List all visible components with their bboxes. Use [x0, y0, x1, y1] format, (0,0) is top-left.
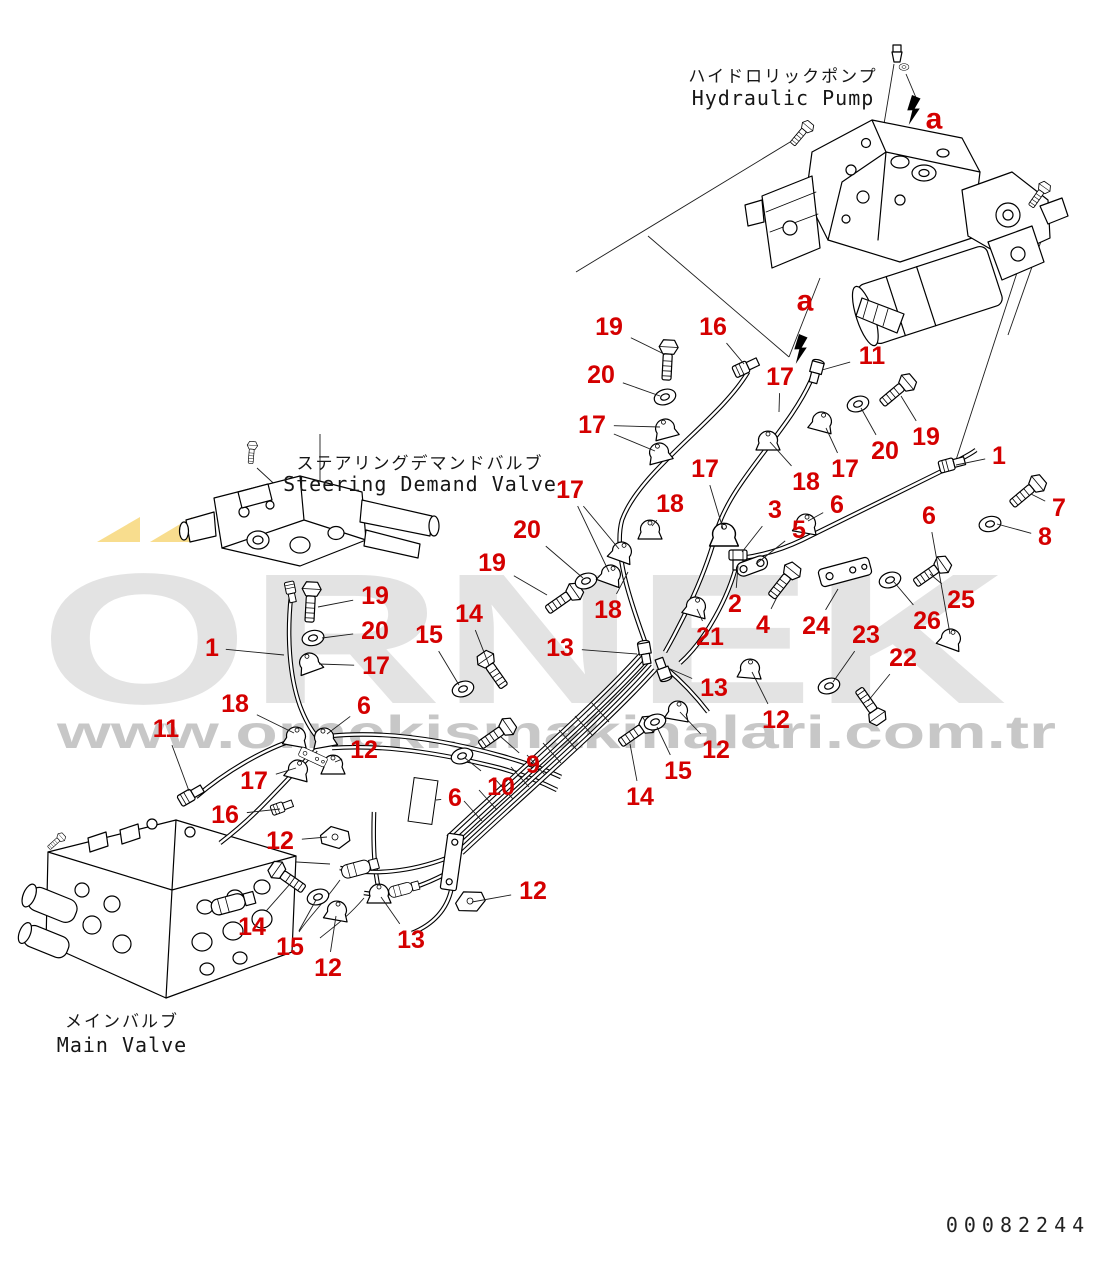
callout-number: 22 — [889, 644, 917, 672]
drawing-part-number: 00082244 — [946, 1213, 1090, 1237]
solenoid-valve-icon — [388, 880, 421, 899]
callout-number: 17 — [691, 455, 719, 483]
callout-number: 19 — [361, 582, 389, 610]
hydraulic-pump-label-jp: ハイドロリックポンプ — [688, 67, 877, 87]
washer-icon — [845, 393, 871, 414]
callout-number: 12 — [314, 954, 342, 982]
clamp-icon — [367, 884, 391, 903]
main-valve-label-en: Main Valve — [57, 1033, 187, 1057]
callout-number: 13 — [700, 674, 728, 702]
callout-number: 21 — [696, 623, 724, 651]
callout-leader-line — [861, 408, 876, 435]
direction-arrow-icon — [905, 95, 922, 127]
direction-arrow-icon — [792, 334, 809, 366]
view-marker-label: a — [926, 103, 943, 136]
bolt-icon — [788, 119, 816, 149]
hydraulic-pump-assembly — [745, 120, 1068, 348]
bracket-icon — [453, 885, 488, 918]
steering-valve-label-jp: ステアリングデマンドバルブ — [297, 453, 544, 474]
washer-icon — [652, 386, 678, 407]
clamp-icon — [645, 440, 673, 464]
callout-number: 12 — [519, 877, 547, 905]
clamp-icon — [638, 520, 662, 539]
callout-leader-line — [330, 916, 336, 952]
callout-number: 1 — [992, 442, 1006, 470]
solenoid-valve-icon — [340, 857, 380, 880]
callout-number: 17 — [578, 411, 606, 439]
callout-number: 19 — [478, 549, 506, 577]
callout-number: 16 — [699, 313, 727, 341]
callout-number: 18 — [792, 468, 820, 496]
callout-number: 17 — [556, 476, 584, 504]
callout-number: 17 — [766, 363, 794, 391]
callout-number: 17 — [240, 767, 268, 795]
callout-number: 4 — [756, 611, 770, 639]
clamp-icon — [323, 899, 350, 922]
callout-leader-line — [826, 428, 838, 453]
callout-leader-line — [822, 362, 850, 370]
callout-number: 19 — [595, 313, 623, 341]
diagram-line-art — [16, 45, 1068, 998]
bolt-icon — [1006, 472, 1049, 512]
callout-leader-line — [623, 383, 660, 396]
callout-number: 18 — [656, 490, 684, 518]
callout-leader-line — [726, 343, 744, 364]
bolt-icon — [246, 441, 258, 464]
part-group-box — [408, 778, 438, 825]
callout-number: 6 — [830, 491, 844, 519]
callout-number: 18 — [221, 690, 249, 718]
bolt-icon — [657, 340, 678, 381]
callout-number: 14 — [238, 913, 266, 941]
callout-leader-line — [1031, 494, 1045, 501]
main-valve-assembly — [16, 819, 296, 998]
hose-fitting-icon — [270, 798, 294, 815]
callout-number: 25 — [947, 586, 975, 614]
callout-leader-line — [710, 485, 723, 529]
washer-icon — [899, 64, 909, 71]
callout-number: 26 — [913, 607, 941, 635]
callout-number: 15 — [664, 757, 692, 785]
callout-number: 20 — [587, 361, 615, 389]
clamp-icon — [808, 409, 836, 433]
callout-number: 9 — [526, 751, 540, 779]
callout-number: 20 — [513, 516, 541, 544]
hydraulic-pump-label-en: Hydraulic Pump — [692, 86, 875, 110]
callout-number: 12 — [762, 706, 790, 734]
callout-number: 14 — [626, 783, 654, 811]
parts-diagram: ORNEK www.ornekismakinalari.com.tr — [0, 0, 1111, 1278]
washer-icon — [305, 886, 331, 907]
callout-number: 20 — [361, 617, 389, 645]
callout-number: 12 — [702, 736, 730, 764]
callout-number: 3 — [768, 496, 782, 524]
callout-number: 13 — [397, 926, 425, 954]
callout-number: 12 — [266, 827, 294, 855]
callout-number: 6 — [448, 784, 462, 812]
callout-number: 1 — [205, 634, 219, 662]
callout-leader-line — [997, 524, 1031, 533]
clamp-icon — [710, 523, 739, 546]
bolt-icon — [876, 371, 919, 411]
callout-number: 8 — [1038, 523, 1052, 551]
parts-diagram-page: ORNEK www.ornekismakinalari.com.tr — [0, 0, 1111, 1278]
callout-number: 17 — [831, 455, 859, 483]
callout-leader-line — [779, 393, 780, 412]
callout-number: 16 — [211, 801, 239, 829]
callout-number: 11 — [859, 342, 886, 370]
callout-number: 24 — [802, 612, 830, 640]
callout-number: 5 — [792, 516, 806, 544]
callout-number: 6 — [357, 692, 371, 720]
steering-valve-label-en: Steering Demand Valve — [283, 472, 557, 496]
callout-number: 17 — [362, 652, 390, 680]
callout-number: 7 — [1052, 494, 1066, 522]
manifold-plate-icon — [440, 833, 464, 891]
callout-leader-line — [436, 799, 441, 800]
callout-leader-line — [299, 900, 316, 931]
callout-leader-line — [901, 396, 916, 421]
callout-number: 6 — [922, 502, 936, 530]
callout-leader-line — [614, 426, 660, 427]
elbow-fitting-icon — [807, 358, 825, 384]
callout-leader-line — [770, 442, 792, 466]
main-valve-label-jp: メインバルブ — [65, 1011, 179, 1032]
callout-number: 19 — [912, 423, 940, 451]
callout-number: 14 — [455, 600, 483, 628]
callout-number: 18 — [594, 596, 622, 624]
callout-leader-line — [614, 434, 655, 451]
callout-number: 11 — [153, 715, 180, 743]
callout-number: 12 — [350, 736, 378, 764]
plug-icon — [892, 45, 902, 62]
callout-number: 15 — [415, 621, 443, 649]
view-marker-label: a — [797, 285, 814, 318]
callout-number: 15 — [276, 933, 304, 961]
callout-number: 2 — [728, 590, 742, 618]
callout-number: 20 — [871, 437, 899, 465]
clamp-icon — [651, 416, 679, 440]
callout-number: 23 — [852, 621, 880, 649]
callout-number: 13 — [546, 634, 574, 662]
callout-number: 10 — [487, 773, 515, 801]
